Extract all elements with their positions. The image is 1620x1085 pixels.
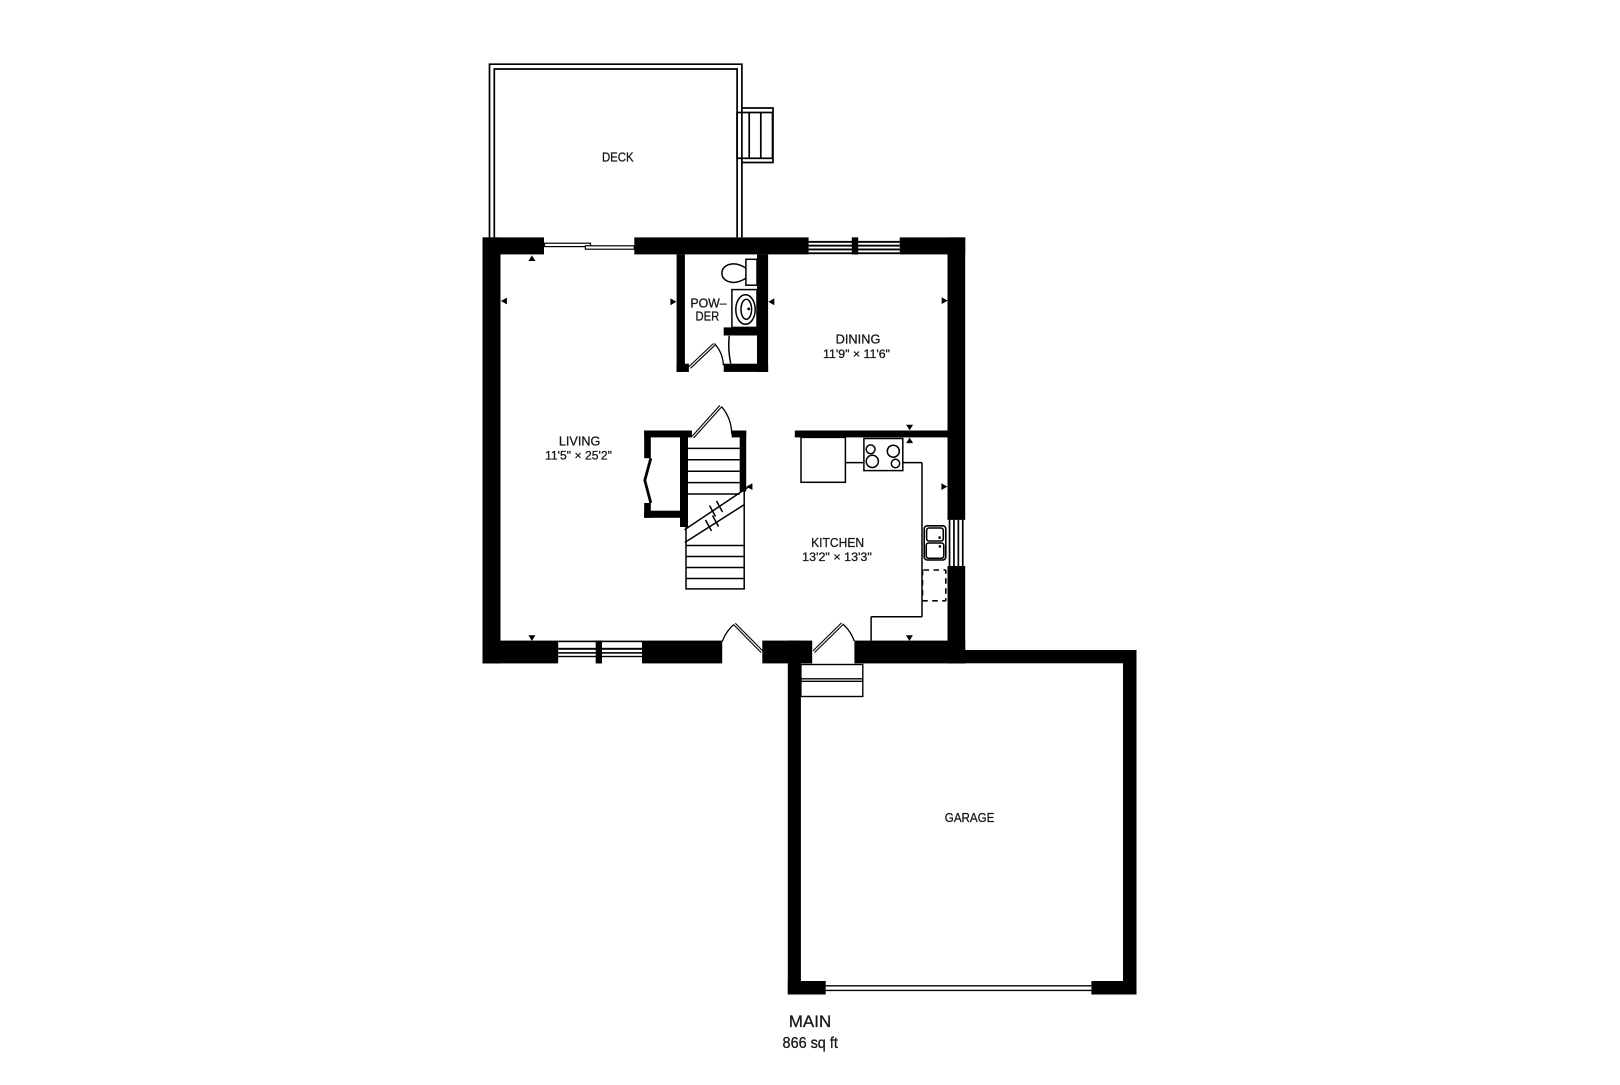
svg-text:DINING: DINING [836,332,881,347]
svg-text:KITCHEN: KITCHEN [811,535,864,550]
svg-text:866 sq ft: 866 sq ft [783,1035,839,1052]
svg-text:LIVING: LIVING [559,434,601,449]
svg-text:GARAGE: GARAGE [945,810,995,825]
svg-text:DER: DER [696,308,720,323]
svg-text:13'2" × 13'3": 13'2" × 13'3" [802,550,872,564]
svg-text:DECK: DECK [602,150,634,165]
svg-text:11'5" × 25'2": 11'5" × 25'2" [545,448,612,462]
svg-text:MAIN: MAIN [789,1012,832,1031]
svg-text:11'9" × 11'6": 11'9" × 11'6" [823,347,890,361]
